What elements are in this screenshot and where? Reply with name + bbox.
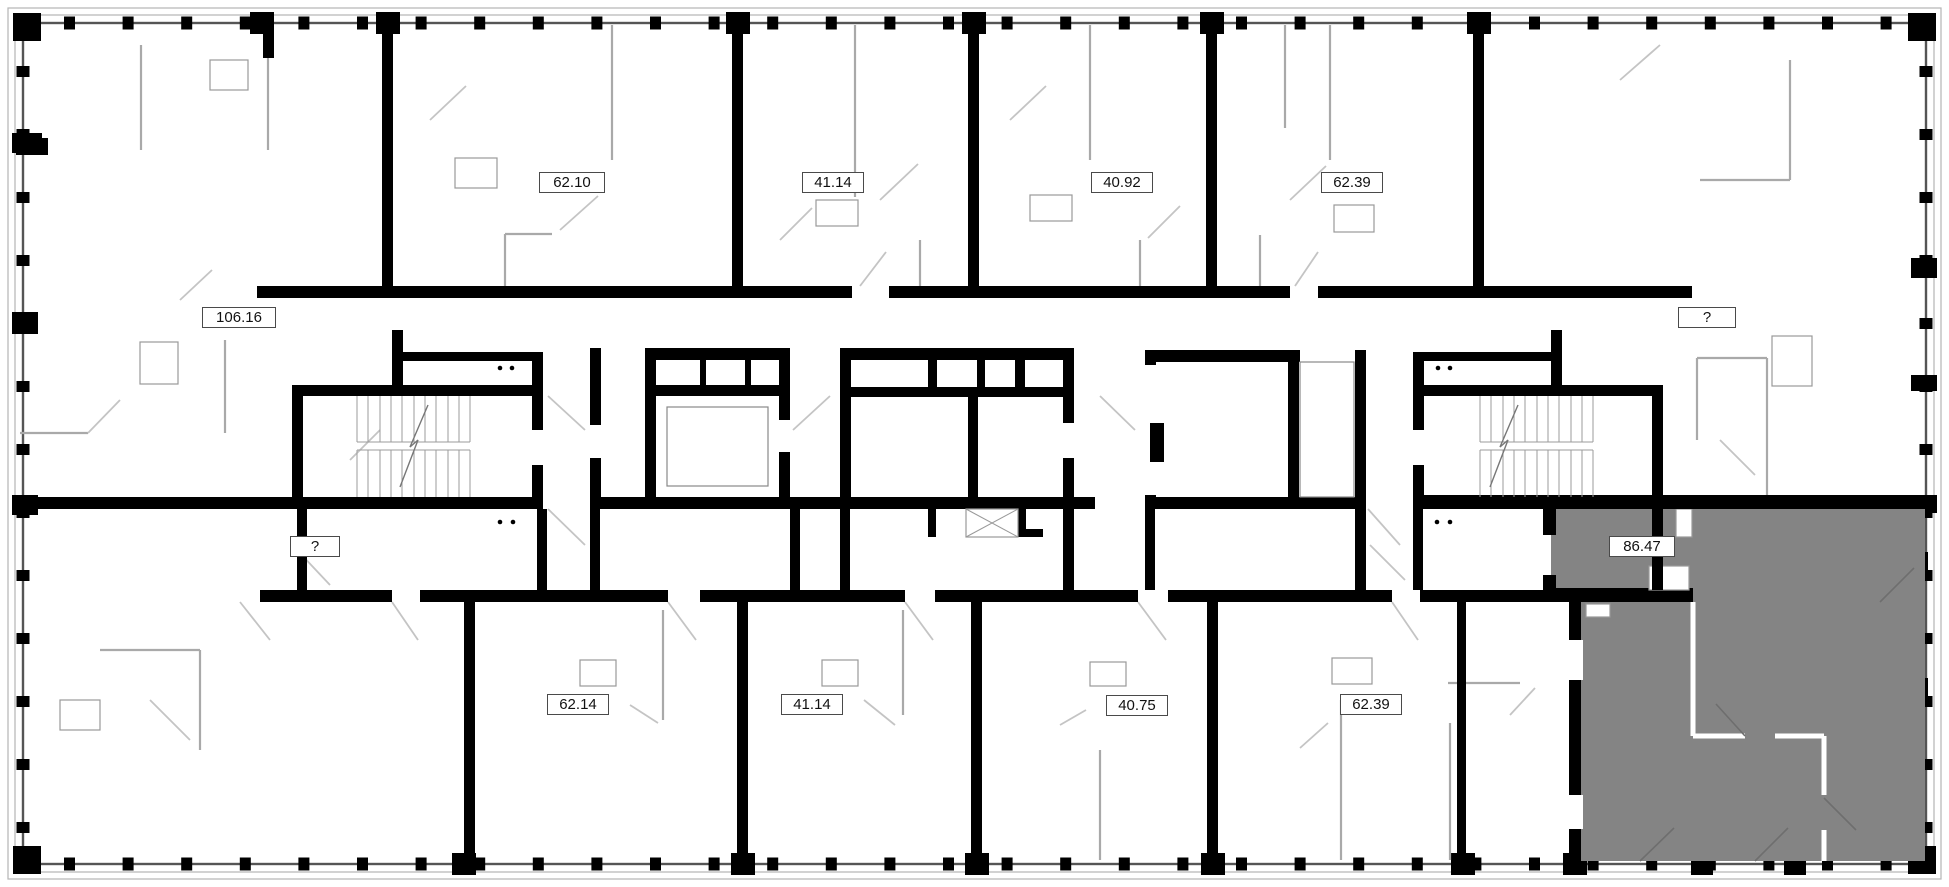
unit-area-text: 40.92 bbox=[1103, 175, 1141, 190]
unit-area-text: 41.14 bbox=[793, 697, 831, 712]
unit-region-86-47-highlighted[interactable] bbox=[1551, 507, 1925, 861]
unit-area-text: 62.39 bbox=[1333, 175, 1371, 190]
unit-label-unknown-bottom-left[interactable]: ? bbox=[290, 536, 340, 557]
unit-area-text: 86.47 bbox=[1623, 539, 1661, 554]
core-block-3 bbox=[1145, 350, 1366, 509]
unit-label-unknown-right[interactable]: ? bbox=[1678, 307, 1736, 328]
unit-area-text: 62.14 bbox=[559, 697, 597, 712]
unit-region-62-39-bottom[interactable] bbox=[1218, 602, 1457, 864]
elevator-core-1 bbox=[590, 348, 790, 509]
unit-region-41-14-bottom[interactable] bbox=[748, 602, 971, 864]
unit-region-unknown-right[interactable] bbox=[1484, 23, 1925, 495]
unit-label-86-47-highlighted[interactable]: 86.47 bbox=[1609, 536, 1675, 557]
unit-area-text: 62.10 bbox=[553, 175, 591, 190]
unit-label-41-14-bottom[interactable]: 41.14 bbox=[781, 694, 843, 715]
unit-region-62-10-top[interactable] bbox=[393, 23, 732, 286]
unit-area-text: ? bbox=[311, 539, 319, 554]
unit-label-41-14-top[interactable]: 41.14 bbox=[802, 172, 864, 193]
unit-region-40-75-bottom[interactable] bbox=[982, 602, 1207, 864]
unit-region-41-14-top[interactable] bbox=[743, 23, 968, 286]
unit-region-106-16-left[interactable] bbox=[16, 23, 382, 497]
unit-area-text: 62.39 bbox=[1352, 697, 1390, 712]
unit-label-106-16-left[interactable]: 106.16 bbox=[202, 307, 276, 328]
unit-label-62-10-top[interactable]: 62.10 bbox=[539, 172, 605, 193]
unit-region-62-39-top[interactable] bbox=[1217, 23, 1473, 286]
floorplan-canvas: 62.10 41.14 40.92 62.39 106.16 ? ? 86.47… bbox=[0, 0, 1949, 887]
unit-area-text: 41.14 bbox=[814, 175, 852, 190]
unit-region-40-92-top[interactable] bbox=[979, 23, 1206, 286]
unit-area-text: 106.16 bbox=[216, 310, 262, 325]
unit-label-40-75-bottom[interactable]: 40.75 bbox=[1106, 695, 1168, 716]
unit-area-text: 40.75 bbox=[1118, 698, 1156, 713]
unit-label-62-14-bottom[interactable]: 62.14 bbox=[547, 694, 609, 715]
unit-region-unknown-bottom-left[interactable] bbox=[16, 509, 464, 864]
unit-area-text: ? bbox=[1703, 310, 1711, 325]
unit-label-62-39-top[interactable]: 62.39 bbox=[1321, 172, 1383, 193]
unit-label-62-39-bottom[interactable]: 62.39 bbox=[1340, 694, 1402, 715]
unit-region-62-14-bottom[interactable] bbox=[470, 602, 737, 864]
unit-label-40-92-top[interactable]: 40.92 bbox=[1091, 172, 1153, 193]
